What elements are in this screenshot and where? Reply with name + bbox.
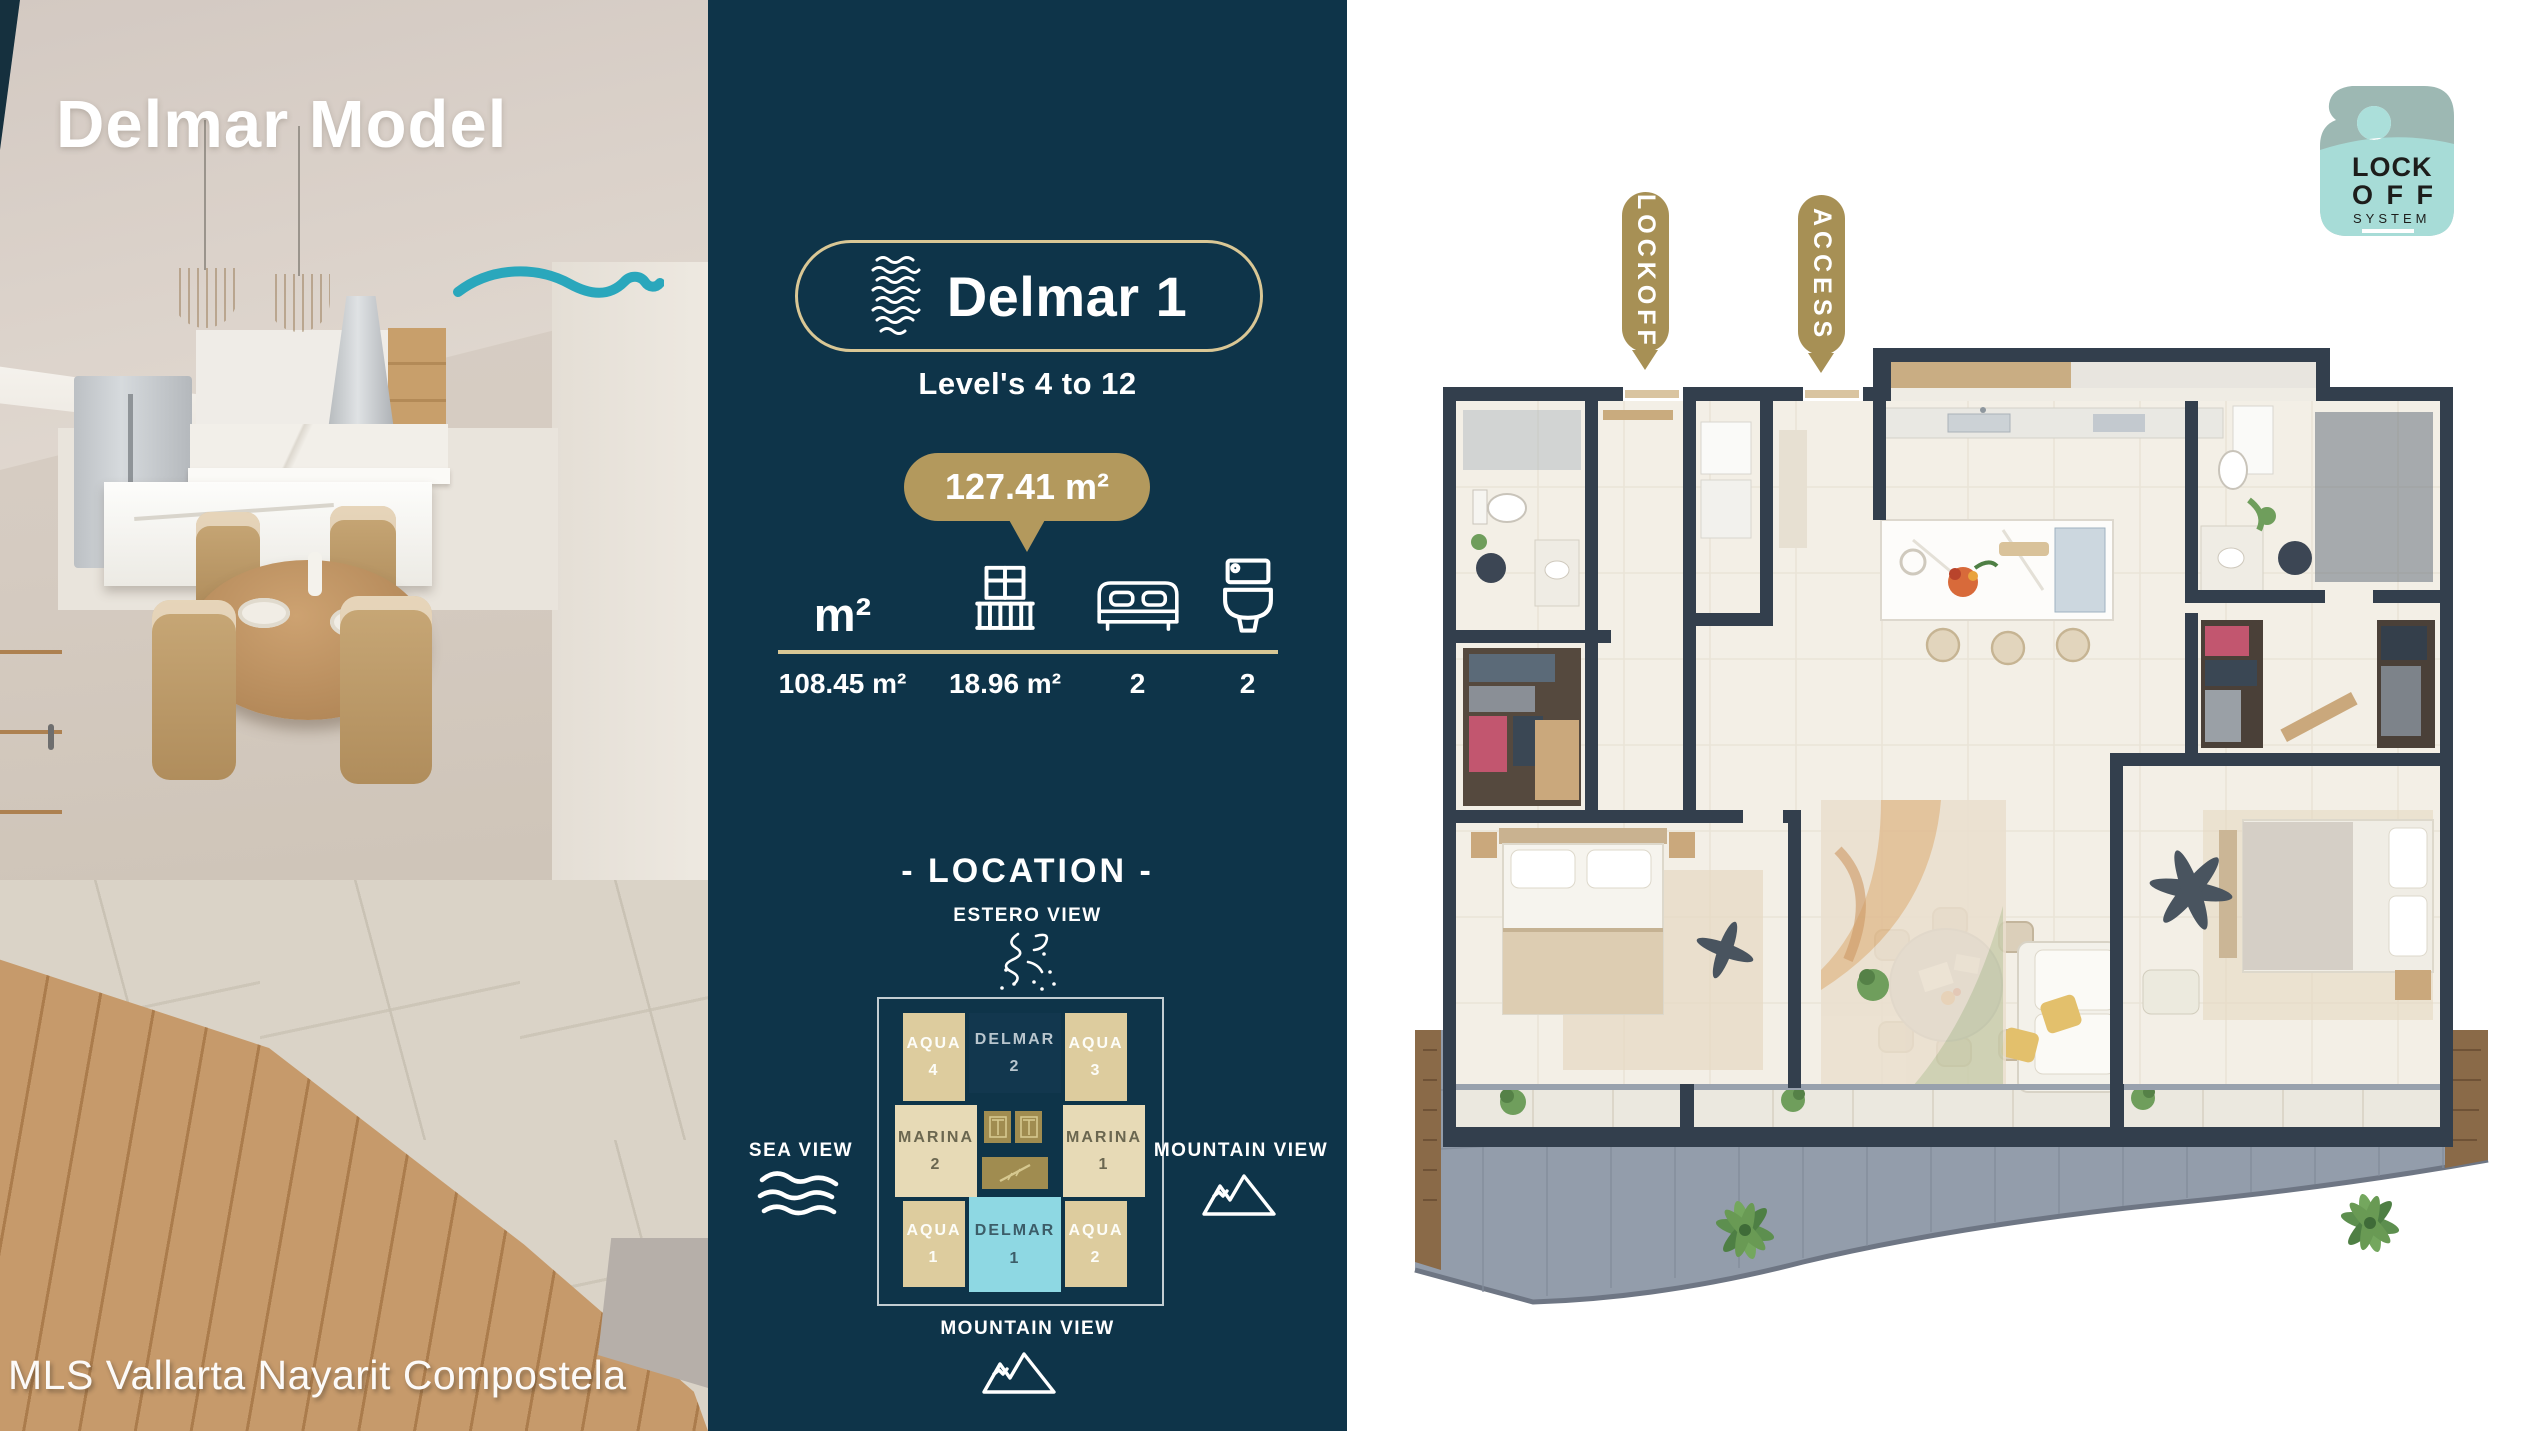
- interior-photo: Delmar Model MLS Vallarta Nayarit Compos…: [0, 0, 708, 1431]
- svg-text:O F F: O F F: [2352, 180, 2436, 210]
- mountain-icon: [1200, 1168, 1278, 1218]
- interior-area-value: 108.45 m²: [755, 668, 930, 700]
- kitchen-island: [1881, 520, 2113, 620]
- map-cell-aqua-2: AQUA2: [1065, 1201, 1127, 1287]
- dining-chair: [152, 600, 236, 780]
- entry-door: [0, 574, 62, 906]
- svg-text:LOCK: LOCK: [2352, 152, 2433, 182]
- hall-cabinet: [1779, 430, 1807, 548]
- map-cell-marina-1: MARINA1: [1063, 1105, 1145, 1197]
- map-cell-aqua-1: AQUA1: [903, 1201, 965, 1287]
- area-icon: m²: [814, 591, 871, 642]
- mountain-view-bottom-label: MOUNTAIN VIEW: [708, 1318, 1347, 1340]
- unit-badge: Delmar 1: [795, 240, 1263, 352]
- living-rug: [1821, 800, 2006, 1086]
- laundry-unit: [1701, 422, 1751, 474]
- bedrooms-value: 2: [1080, 668, 1195, 700]
- spec-table: m²: [708, 540, 1347, 700]
- floorplan-drawing: [1413, 330, 2493, 1330]
- map-cell-aqua-3: AQUA3: [1065, 1013, 1127, 1101]
- balcony-area-value: 18.96 m²: [930, 668, 1080, 700]
- toilet-icon: [1195, 540, 1300, 642]
- sea-view-label: SEA VIEW: [736, 1140, 866, 1162]
- dining-chair: [340, 596, 432, 784]
- estero-view-label: ESTERO VIEW: [708, 905, 1347, 927]
- map-cell-delmar-2: DELMAR2: [969, 1013, 1061, 1093]
- location-title: - LOCATION -: [708, 852, 1347, 891]
- unit-name: Delmar 1: [947, 264, 1188, 329]
- mountain-icon: [980, 1346, 1058, 1396]
- sofa: [2000, 942, 2118, 1092]
- page-title: Delmar Model: [56, 86, 696, 163]
- closet-left: [1463, 648, 1581, 806]
- mountain-view-right-label: MOUNTAIN VIEW: [1146, 1140, 1336, 1162]
- building-location-map: AQUA4 DELMAR2 AQUA3 MARINA2 MARINA1: [877, 997, 1164, 1306]
- kitchen-counter: [1883, 408, 2223, 438]
- hall-door: [1603, 410, 1673, 420]
- elevator-icon: [984, 1111, 1011, 1143]
- stairs-icon: [982, 1157, 1048, 1189]
- map-cell-delmar-1-highlighted: DELMAR1: [969, 1197, 1061, 1292]
- lock-off-system-badge: LOCK O F F SYSTEM: [2316, 80, 2458, 240]
- plate: [238, 598, 290, 628]
- armchair: [2143, 970, 2199, 1014]
- unit-levels: Level's 4 to 12: [708, 366, 1347, 402]
- svg-text:SYSTEM: SYSTEM: [2353, 211, 2430, 226]
- water-ripple-icon: [871, 255, 921, 337]
- brochure-page: Delmar Model MLS Vallarta Nayarit Compos…: [0, 0, 2545, 1431]
- bathrooms-value: 2: [1195, 668, 1300, 700]
- map-cell-aqua-4: AQUA4: [903, 1013, 965, 1101]
- balcony-icon: [930, 540, 1080, 642]
- map-cell-marina-2: MARINA2: [895, 1105, 977, 1197]
- wave-underline-icon: [452, 262, 664, 310]
- floorplan-panel: LOCK O F F SYSTEM LOCKOFF ACCESS: [1347, 0, 2545, 1431]
- sea-waves-icon: [756, 1168, 846, 1220]
- bottle: [308, 552, 322, 596]
- elevator-icon: [1015, 1111, 1042, 1143]
- lockoff-tag: LOCKOFF: [1622, 192, 1669, 352]
- estero-icon: [984, 932, 1072, 994]
- bed-icon: [1080, 540, 1195, 642]
- watermark: MLS Vallarta Nayarit Compostela: [8, 1352, 627, 1399]
- marble-backsplash: [190, 424, 448, 472]
- divider-line: [778, 650, 1278, 654]
- info-panel: Delmar 1 Level's 4 to 12 127.41 m² m²: [708, 0, 1347, 1431]
- island-stools: [1927, 629, 2089, 664]
- total-area-chip: 127.41 m²: [904, 453, 1150, 521]
